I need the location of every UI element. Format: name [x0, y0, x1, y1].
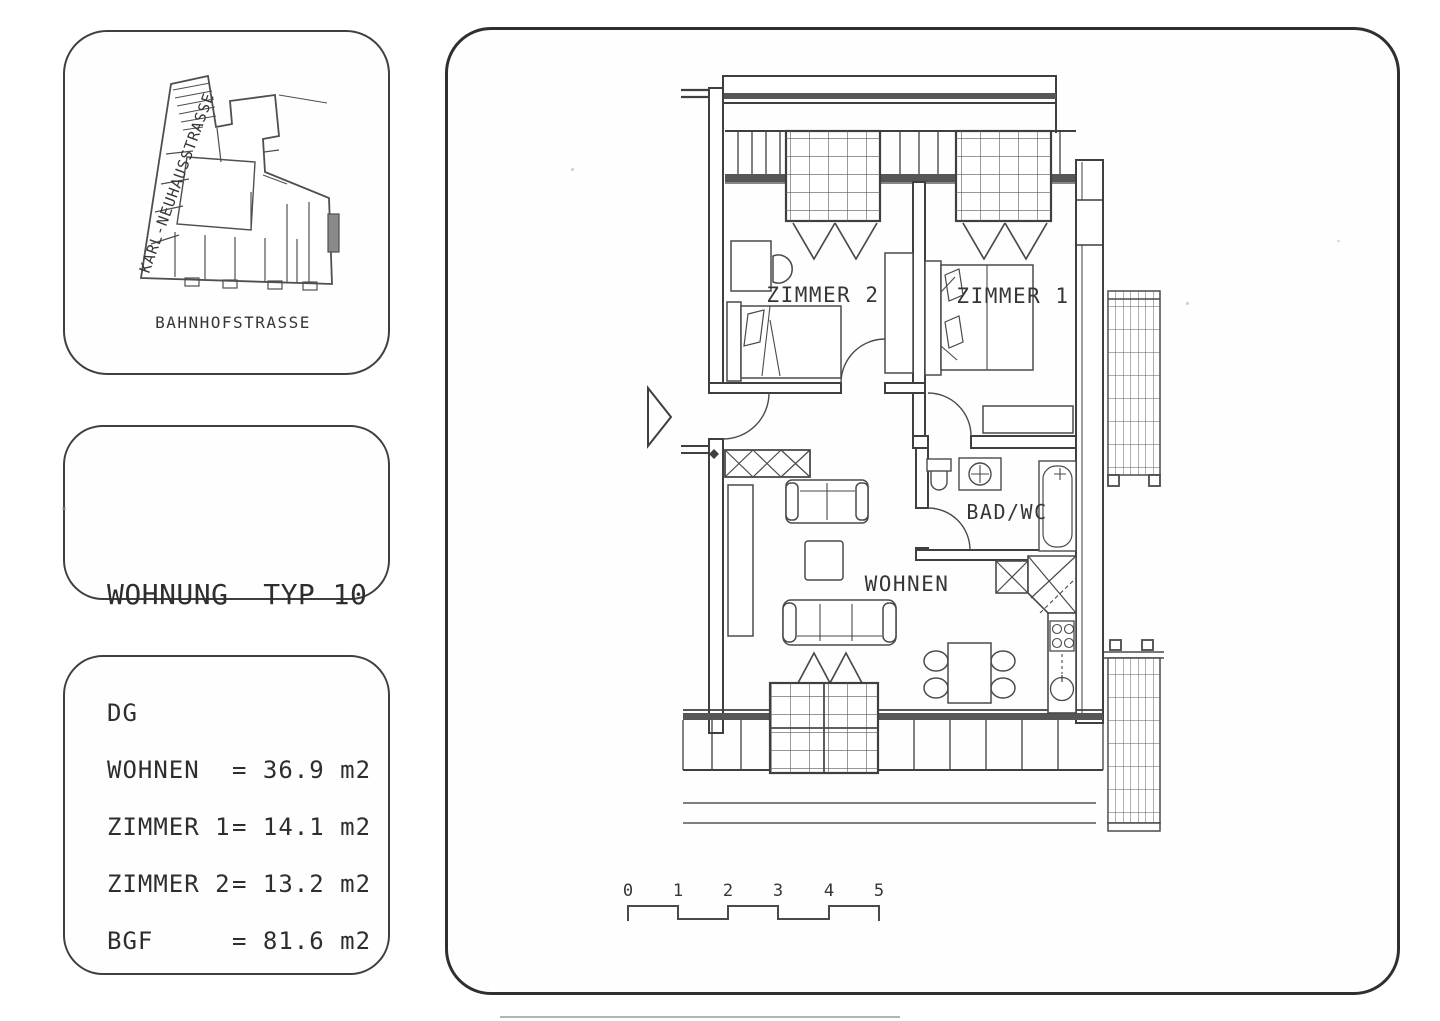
corner-wardrobe — [996, 561, 1028, 593]
scan-edge-line — [500, 1016, 900, 1018]
terrace-edge-lines — [683, 803, 1096, 823]
site-neighbor-line — [279, 95, 327, 103]
wardrobe — [885, 253, 913, 373]
chair — [991, 678, 1015, 698]
scan-speck — [571, 168, 574, 171]
area-table-card: DG WOHNEN = 36.9 m2 ZIMMER 1 = 14.1 m2 Z… — [63, 655, 390, 975]
floor-plan-drawing: ZIMMER 2 ZIMMER 1 BAD/WC WOHNEN 0 1 2 3 … — [448, 30, 1397, 992]
balcony-right-middle — [1108, 291, 1160, 486]
chair — [924, 651, 948, 671]
scale-tick: 0 — [623, 881, 633, 901]
area-row-zimmer1: ZIMMER 1 = 14.1 m2 — [107, 799, 388, 856]
floor-plan-panel: ZIMMER 2 ZIMMER 1 BAD/WC WOHNEN 0 1 2 3 … — [445, 27, 1400, 995]
zimmer2-furniture — [727, 241, 913, 381]
area-label: ZIMMER 2 — [107, 856, 232, 913]
area-label: BGF — [107, 913, 232, 970]
area-row-zimmer2: ZIMMER 2 = 13.2 m2 — [107, 856, 388, 913]
scale-tick: 1 — [673, 881, 683, 901]
bed-headboard — [727, 302, 741, 381]
bed-headboard — [925, 261, 941, 375]
pillow — [945, 316, 963, 348]
apartment-type-line: WOHNUNG TYP 10 — [107, 567, 388, 622]
area-value: = 36.9 m2 — [232, 742, 371, 799]
toilet-tank — [927, 459, 951, 471]
site-dark-annex — [328, 214, 339, 252]
scale-bar-numbers: 0 1 2 3 4 5 — [623, 881, 884, 901]
scale-tick: 4 — [824, 881, 834, 901]
scale-tick: 2 — [723, 881, 733, 901]
corner-unit — [1028, 556, 1076, 613]
area-row-bgf: BGF = 81.6 m2 — [107, 913, 388, 970]
scale-bar: 0 1 2 3 4 5 — [623, 881, 884, 921]
room-label-zimmer1: ZIMMER 1 — [956, 284, 1069, 308]
entry-door-arc — [723, 393, 769, 439]
balcony-bottom-right — [1104, 640, 1164, 831]
chair — [991, 651, 1015, 671]
area-value: = 81.6 m2 — [232, 913, 371, 970]
apartment-type-card: WOHNUNG TYP 10 3 ZIMMER — [63, 425, 390, 600]
sideboard — [983, 406, 1073, 433]
dormer-window-top-left — [786, 131, 880, 259]
desk-chair — [773, 255, 792, 283]
bath-door-arc — [928, 508, 970, 550]
entry-arrow-icon — [648, 388, 671, 446]
roof-slope-chevrons — [963, 223, 1047, 259]
scan-speck — [62, 507, 66, 510]
scale-tick: 5 — [874, 881, 884, 901]
roof-slope-chevrons — [798, 653, 862, 683]
scan-speck — [1337, 240, 1340, 242]
room-label-bad-wc: BAD/WC — [966, 500, 1047, 524]
roof-slope-chevrons — [793, 223, 877, 259]
dormer-window-bottom — [770, 653, 878, 773]
desk — [731, 241, 771, 291]
area-label: WOHNEN — [107, 742, 232, 799]
chair — [924, 678, 948, 698]
dining-set — [924, 643, 1015, 703]
scale-bar-steps — [628, 906, 879, 921]
area-value: = 14.1 m2 — [232, 799, 371, 856]
site-plan-drawing: KARL-NEUHAUSSTRASSE BAHNHOFSTRASSE — [65, 32, 388, 373]
scale-tick: 3 — [773, 881, 783, 901]
sofa-two-seat — [786, 480, 868, 523]
dining-table — [948, 643, 991, 703]
zimmer2-door-arc — [841, 339, 885, 383]
area-label: ZIMMER 1 — [107, 799, 232, 856]
hall-wardrobe — [725, 450, 810, 477]
sofa-three-seat — [783, 600, 896, 645]
zimmer1-door-arc — [928, 393, 971, 436]
toilet-bowl — [931, 471, 947, 490]
bottom-window-mullions — [683, 720, 1103, 770]
scan-speck — [1186, 302, 1189, 305]
floor-label: DG — [107, 685, 388, 742]
room-label-wohnen: WOHNEN — [865, 572, 950, 596]
stove — [1050, 621, 1074, 651]
street-label-bahnhofstrasse: BAHNHOFSTRASSE — [155, 313, 311, 332]
coffee-table — [805, 541, 843, 580]
room-label-zimmer2: ZIMMER 2 — [766, 283, 879, 307]
area-value: = 13.2 m2 — [232, 856, 371, 913]
site-plan-card: KARL-NEUHAUSSTRASSE BAHNHOFSTRASSE — [63, 30, 390, 375]
shelf-cabinet — [728, 485, 753, 636]
dormer-window-top-right — [956, 131, 1051, 259]
area-row-wohnen: WOHNEN = 36.9 m2 — [107, 742, 388, 799]
